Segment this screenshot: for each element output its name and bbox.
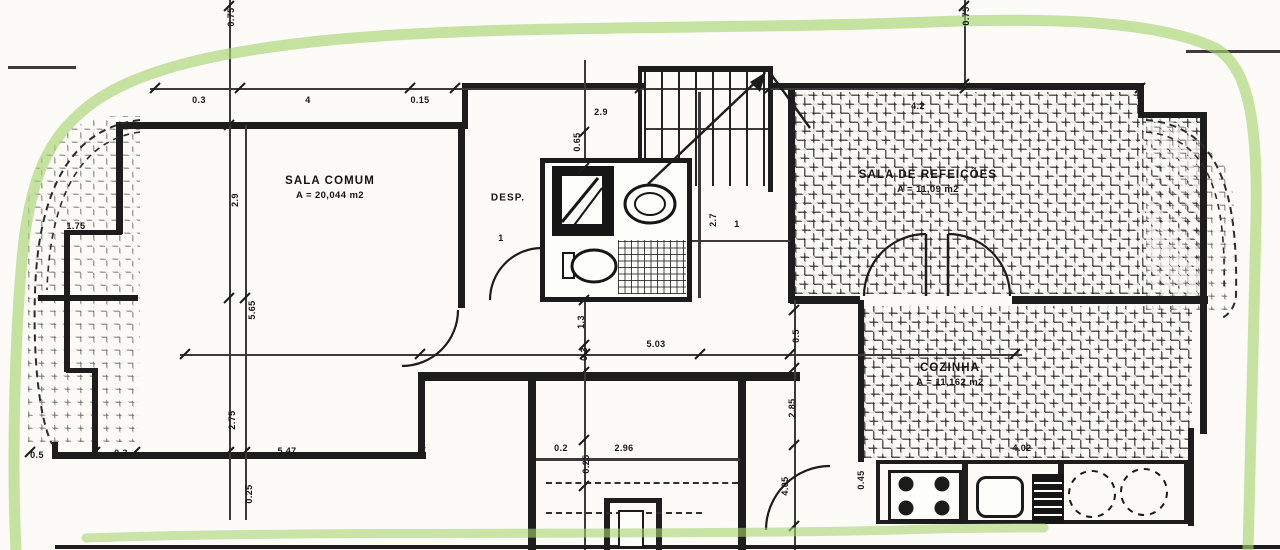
wall-segment bbox=[1012, 296, 1208, 304]
dimension-label: 0.65 bbox=[572, 132, 582, 151]
dimension-label: 1 bbox=[498, 233, 503, 243]
shower-tray bbox=[560, 174, 604, 226]
dimension-label: 2.85 bbox=[787, 398, 797, 417]
dimension-label: 0.3 bbox=[114, 448, 128, 458]
dimension-label: 2.9 bbox=[594, 107, 608, 117]
floor-plan: SALA COMUM A = 20,044 m2 DESP. SALA DE R… bbox=[0, 0, 1280, 550]
dimension-label: 0.2 bbox=[554, 443, 568, 453]
dimension-label: 1.75 bbox=[66, 221, 85, 231]
wall-segment bbox=[584, 60, 586, 550]
wall-segment bbox=[546, 482, 738, 484]
wall-segment bbox=[604, 498, 662, 503]
wall-segment bbox=[52, 452, 426, 459]
balcony-right-hatch bbox=[1146, 118, 1234, 310]
room-label-sala-refeicoes: SALA DE REFEIÇÕES A = 11,09 m2 bbox=[859, 169, 997, 195]
room-area: A = 20,044 m2 bbox=[285, 190, 375, 201]
wall-segment bbox=[1138, 83, 1144, 117]
wall-segment bbox=[656, 498, 662, 550]
dimension-label: 1.3 bbox=[576, 315, 586, 329]
wall-segment bbox=[858, 300, 864, 462]
dimension-label: 0.75 bbox=[961, 6, 971, 25]
dimension-label: 0.45 bbox=[856, 470, 866, 489]
wall-segment bbox=[604, 498, 610, 550]
wall-segment bbox=[8, 66, 76, 69]
wall-segment bbox=[38, 295, 138, 301]
dimension-label: 2.9 bbox=[230, 193, 240, 207]
wall-segment bbox=[788, 83, 795, 303]
wall-segment bbox=[790, 296, 860, 304]
dimension-label: 5.03 bbox=[646, 339, 665, 349]
wall-segment bbox=[64, 230, 70, 372]
wall-segment bbox=[962, 462, 968, 522]
wall-segment bbox=[116, 122, 123, 234]
dimension-label: 0.15 bbox=[410, 95, 429, 105]
despensa-door-arc bbox=[490, 248, 542, 300]
wall-segment bbox=[876, 460, 1188, 464]
toilet-tank bbox=[562, 252, 575, 279]
dimension-label: 2.75 bbox=[227, 410, 237, 429]
dimension-label: 2.7 bbox=[708, 213, 718, 227]
room-area: A = 11,09 m2 bbox=[859, 184, 997, 195]
appliance-circle-2 bbox=[1121, 469, 1167, 515]
room-label-despensa: DESP. bbox=[491, 193, 525, 204]
balcony-left-hatch bbox=[28, 116, 140, 442]
wall-segment bbox=[245, 125, 247, 520]
wall-segment bbox=[52, 442, 58, 458]
dimension-label: 4.05 bbox=[780, 476, 790, 495]
dimension-label: 0.5 bbox=[30, 450, 44, 460]
dimension-label: 4 bbox=[305, 95, 310, 105]
wall-segment bbox=[418, 372, 425, 459]
wall-segment bbox=[1138, 112, 1206, 118]
room-area: A = 11,162 m2 bbox=[916, 377, 983, 388]
dimension-label: 0.25 bbox=[244, 484, 254, 503]
room-name: SALA COMUM bbox=[285, 175, 375, 187]
kitchen-tile-floor bbox=[864, 306, 1192, 458]
kitchen-appliance bbox=[1032, 474, 1064, 524]
wall-segment bbox=[692, 240, 790, 242]
bathroom-tile-floor bbox=[618, 240, 686, 294]
dimension-label: 1 bbox=[734, 219, 739, 229]
dimension-label: 5.65 bbox=[247, 300, 257, 319]
dimension-label: 0.5 bbox=[791, 329, 801, 343]
entry-door-leaf bbox=[618, 510, 644, 548]
room-name: DESP. bbox=[491, 193, 525, 204]
room-label-sala-comum: SALA COMUM A = 20,044 m2 bbox=[285, 175, 375, 201]
appliance-circle-1 bbox=[1069, 471, 1115, 517]
kitchen-sink bbox=[976, 476, 1024, 518]
stove bbox=[888, 470, 962, 522]
wall-segment bbox=[229, 0, 231, 520]
highlighter-bottom bbox=[86, 528, 1044, 538]
wall-segment bbox=[92, 370, 98, 456]
dimension-label: 0.3 bbox=[192, 95, 206, 105]
wall-segment bbox=[1188, 428, 1194, 526]
wall-segment bbox=[458, 122, 465, 308]
room-label-cozinha: COZINHA A = 11,162 m2 bbox=[916, 362, 983, 388]
dimension-label: 4.02 bbox=[1012, 443, 1031, 453]
dimension-label: 0.25 bbox=[581, 454, 591, 473]
wall-segment bbox=[1184, 460, 1188, 524]
wall-segment bbox=[118, 122, 468, 129]
dimension-label: 5.47 bbox=[277, 446, 296, 456]
wall-segment bbox=[1186, 50, 1280, 53]
wall-segment bbox=[528, 378, 536, 550]
wall-segment bbox=[876, 460, 880, 524]
dimension-label: 0.75 bbox=[226, 7, 236, 26]
sala-door-arc bbox=[402, 310, 458, 366]
dimension-label: 2.96 bbox=[614, 443, 633, 453]
room-name: COZINHA bbox=[916, 362, 983, 374]
wall-segment bbox=[150, 88, 992, 90]
wall-segment bbox=[768, 66, 773, 192]
wall-segment bbox=[180, 354, 1022, 356]
wall-segment bbox=[55, 545, 1280, 549]
dimension-label: 0.3 bbox=[579, 347, 589, 361]
wall-segment bbox=[536, 458, 740, 461]
dimension-label: 4.2 bbox=[911, 101, 925, 111]
room-name: SALA DE REFEIÇÕES bbox=[859, 169, 997, 181]
hall-door-arc bbox=[766, 466, 830, 530]
wall-segment bbox=[1200, 112, 1207, 434]
wall-segment bbox=[738, 378, 746, 550]
